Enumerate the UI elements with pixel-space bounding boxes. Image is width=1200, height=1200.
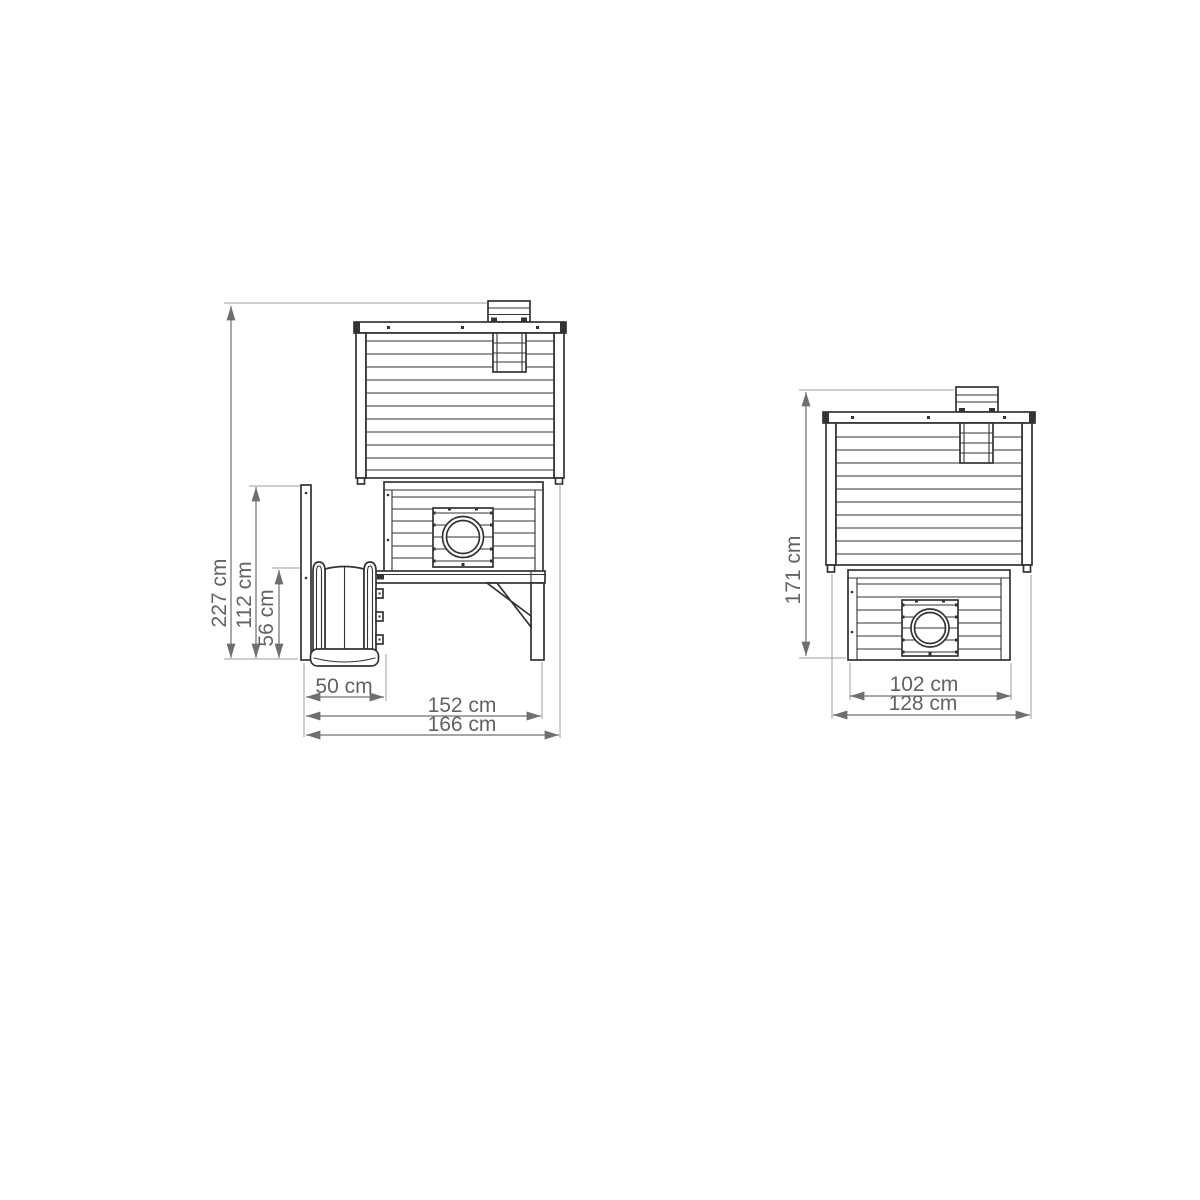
dim-label-front-overall-height: 171 cm — [782, 536, 805, 605]
technical-drawing: 227 cm 112 cm 56 cm 50 cm 152 cm 166 cm … — [0, 0, 1200, 1200]
side-leg — [531, 583, 544, 660]
side-porthole — [433, 508, 494, 568]
dim-label-side-post-height: 112 cm — [233, 561, 256, 628]
side-roof — [356, 333, 564, 484]
front-ridge-cap — [823, 412, 1035, 423]
playhouse-dimension-diagram: 227 cm 112 cm 56 cm 50 cm 152 cm 166 cm … — [0, 0, 1200, 1200]
dim-label-side-slide-height: 56 cm — [255, 589, 278, 646]
slide-right-rail — [364, 562, 376, 654]
front-roof — [826, 423, 1032, 572]
slide-left-rail — [313, 562, 325, 654]
dim-label-side-overall-depth: 166 cm — [428, 713, 497, 736]
dim-label-side-slide-depth: 50 cm — [315, 675, 372, 698]
side-chimney — [488, 301, 530, 322]
slide-post — [301, 485, 311, 660]
front-view — [823, 387, 1035, 660]
dim-label-front-roof-width: 128 cm — [889, 692, 958, 715]
background — [0, 0, 1200, 1200]
front-chimney — [956, 387, 998, 412]
front-porthole — [902, 600, 959, 657]
dim-label-side-overall-height: 227 cm — [208, 559, 231, 628]
slide-foot — [311, 649, 379, 666]
side-ridge-cap — [354, 322, 566, 333]
